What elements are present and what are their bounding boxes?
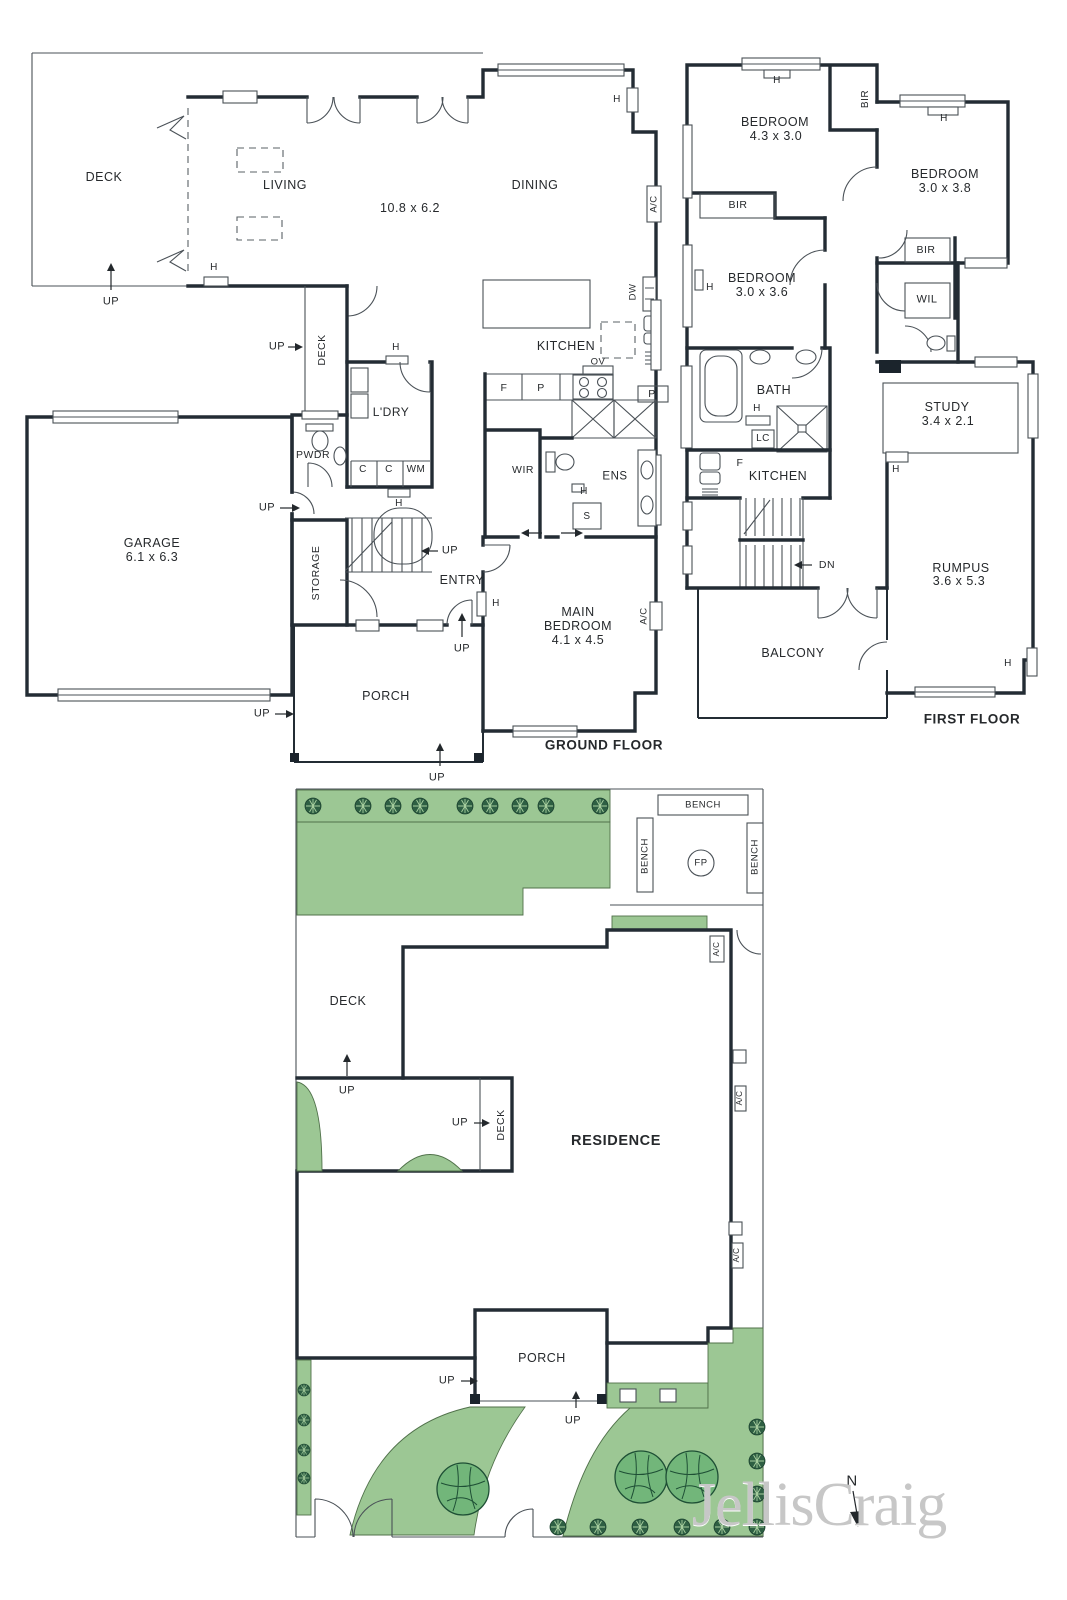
heater-marker [477, 592, 486, 616]
ac-unit [732, 1243, 743, 1268]
heater-marker [1027, 648, 1037, 676]
tree-icon [437, 1463, 489, 1515]
fridge-icon [700, 453, 720, 470]
stair-rail [374, 508, 432, 564]
toilet-icon [546, 452, 555, 472]
site-plan [296, 789, 863, 1537]
shower-icon [573, 503, 601, 529]
basin-icon [796, 350, 816, 364]
skylight-icon [614, 400, 656, 438]
ac-unit [647, 186, 661, 222]
ac-unit [710, 936, 724, 962]
heater-marker [746, 416, 770, 425]
heater-marker [204, 277, 228, 286]
floorplan-drawing [0, 0, 1067, 1600]
bench [658, 795, 748, 815]
heater-marker [388, 489, 410, 497]
basin-icon [334, 447, 346, 465]
bir-robe [700, 194, 775, 218]
island-bench [483, 280, 590, 328]
linen-cupboard [752, 430, 774, 448]
toilet-icon [306, 424, 333, 431]
floorplan-page: DECKLIVING10.8 x 6.2DININGKITCHENL'DRYPW… [0, 0, 1067, 1600]
bench [637, 818, 653, 892]
basin-icon [750, 350, 770, 364]
toilet-icon [927, 336, 945, 350]
skylight-icon [572, 400, 614, 438]
firepit-circle [688, 850, 714, 876]
bir-robe [905, 238, 950, 262]
heater-marker [386, 356, 408, 364]
heater-marker [695, 270, 703, 290]
bench [747, 823, 763, 893]
first-floor-plan [681, 58, 1038, 718]
brand-watermark: JellisCraig [692, 1470, 946, 1541]
ground-floor-plan [27, 53, 668, 766]
wil-robe [905, 283, 950, 318]
tree-icon [615, 1451, 667, 1503]
study-desk [883, 383, 1018, 453]
heater-marker [572, 484, 584, 492]
heater-marker [764, 70, 790, 78]
stove-icon [573, 375, 613, 399]
heater-marker [627, 88, 638, 112]
heater-marker [928, 107, 958, 115]
duct [879, 360, 901, 373]
heater-marker [886, 452, 908, 462]
ac-unit [735, 1086, 746, 1111]
ac-unit [650, 602, 662, 630]
